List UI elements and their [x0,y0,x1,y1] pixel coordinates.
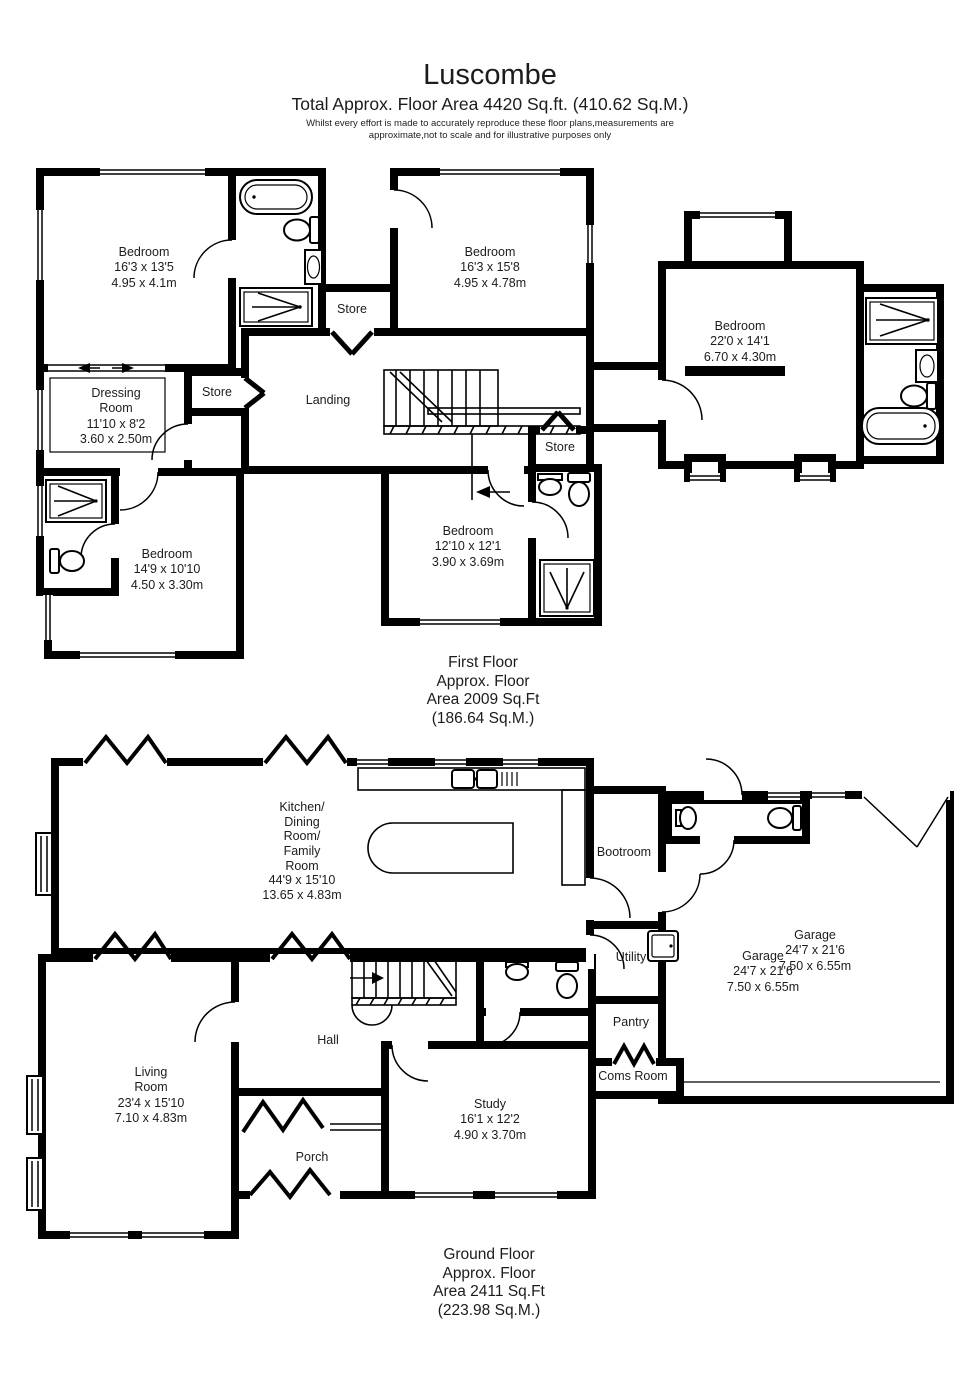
room-label-store-left: Store [202,385,232,400]
room-label-store-right: Store [545,440,575,455]
room-label-bedroom-5: Bedroom 12'10 x 12'1 3.90 x 3.69m [432,524,504,570]
room-label-coms-room: Coms Room [598,1069,667,1084]
sliding-door-arrows [48,363,165,373]
sink-icon [506,962,528,980]
room-label-dressing: Dressing Room 11'10 x 8'2 3.60 x 2.50m [80,386,152,447]
kitchen-sink-icon [452,770,517,788]
room-label-bedroom-1: Bedroom 16'3 x 13'5 4.95 x 4.1m [111,245,176,291]
toilet-icon [768,806,801,830]
ground-floor-caption: Ground Floor Approx. Floor Area 2411 Sq.… [433,1246,545,1320]
room-label-bedroom-3: Bedroom 22'0 x 14'1 6.70 x 4.30m [704,319,776,365]
floorplan-page: Luscombe Total Approx. Floor Area 4420 S… [0,0,980,1386]
first-floor-caption: First Floor Approx. Floor Area 2009 Sq.F… [427,654,540,728]
shower-icon [240,288,312,326]
shower-icon [866,298,938,344]
toilet-icon [568,473,590,506]
appliance-icon [648,931,678,961]
shower-icon [46,480,106,522]
toilet-icon [50,549,84,573]
sink-icon [305,250,322,284]
room-corridor [590,366,664,428]
sink-icon [676,807,696,829]
room-label-utility: Utility [616,950,647,965]
room-label-living-room: Living Room 23'4 x 15'10 7.10 x 4.83m [115,1065,187,1126]
room-label-hall: Hall [317,1033,339,1048]
door-swing-icon [704,759,742,800]
toilet-icon [556,962,578,998]
ground-floor-plan [27,737,950,1240]
room-label-bedroom-2: Bedroom 16'3 x 15'8 4.95 x 4.78m [454,245,526,291]
sink-icon [916,350,938,382]
bathtub-icon [240,180,312,214]
page-title: Luscombe [423,60,557,90]
wardrobe-bar [685,366,785,376]
room-label-store-top: Store [337,302,367,317]
room-label-bedroom-4: Bedroom 14'9 x 10'10 4.50 x 3.30m [131,547,203,593]
disclaimer-text: Whilst every effort is made to accuratel… [306,118,674,143]
toilet-icon [284,217,319,243]
total-area-subtitle: Total Approx. Floor Area 4420 Sq.ft. (41… [292,94,689,115]
room-label-garage-2: Garage 24'7 x 21'6 7.50 x 6.55m [727,949,799,995]
room-label-bootroom: Bootroom [597,845,651,860]
room-label-landing: Landing [306,393,351,408]
toilet-icon [901,383,936,409]
room-label-pantry: Pantry [613,1015,649,1030]
room-label-study: Study 16'1 x 12'2 4.90 x 3.70m [454,1097,526,1143]
room-label-kitchen: Kitchen/ Dining Room/ Family Room 44'9 x… [262,800,341,902]
bathtub-icon [862,408,940,444]
room-label-porch: Porch [296,1150,329,1165]
room-hall-corridor [480,1012,592,1045]
shower-icon [540,560,594,616]
room-bedroom-3 [662,265,860,465]
sink-icon [538,474,562,495]
